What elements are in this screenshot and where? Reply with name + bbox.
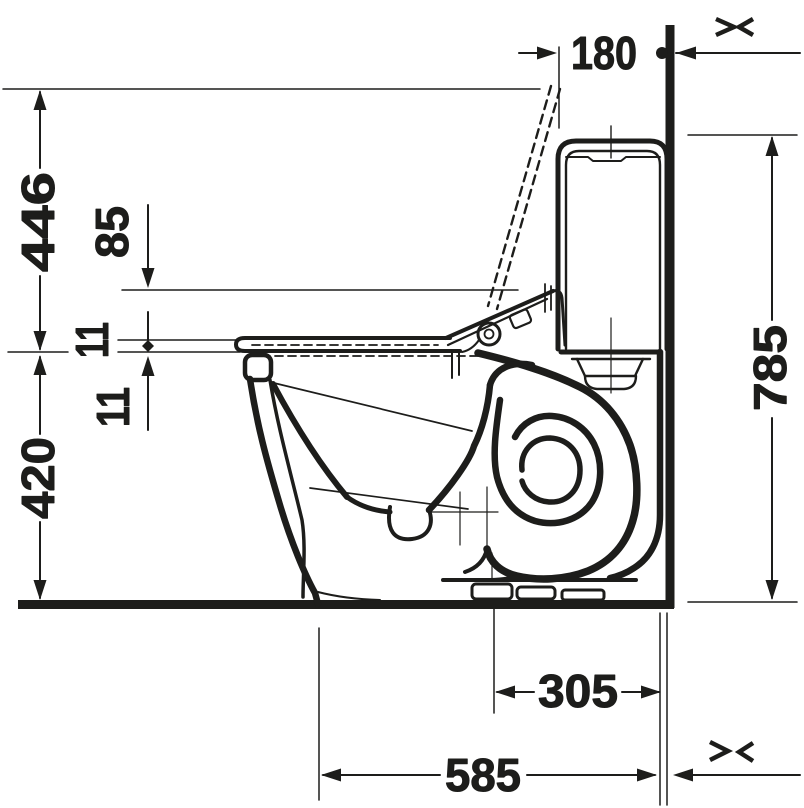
arrowhead-right-icon <box>641 686 661 699</box>
trapway-curves <box>429 364 636 580</box>
arrowhead-up-icon <box>34 355 47 375</box>
dimension-label-585: 585 <box>445 749 521 801</box>
arrowhead-left-icon <box>676 47 696 60</box>
dimension-420: 420 <box>8 352 68 600</box>
dimension-85: 85 <box>86 205 518 290</box>
arrowhead-left-icon <box>495 686 515 699</box>
sump-section <box>389 507 431 539</box>
floor-line <box>18 602 797 605</box>
dimension-label-180: 180 <box>571 27 637 79</box>
dimension-dot-icon <box>656 47 668 59</box>
dimension-label-446: 446 <box>12 172 64 272</box>
arrowhead-down-icon <box>34 580 47 600</box>
dimension-label-305: 305 <box>538 665 618 717</box>
dimension-label-785: 785 <box>744 325 796 411</box>
arrowhead-up-icon <box>34 90 47 110</box>
cistern-outline <box>558 141 667 349</box>
arrowhead-left-icon <box>321 769 341 782</box>
dimension-785: 785 <box>688 135 797 600</box>
arrowhead-down-icon <box>766 580 779 600</box>
arrowhead-left-icon <box>673 769 693 782</box>
dimension-11-upper: 11 <box>66 312 240 358</box>
arrowhead-right-icon <box>537 47 557 60</box>
dimension-11-lower: 11 <box>87 356 155 430</box>
dimension-label-420: 420 <box>12 437 64 519</box>
open-lid-dashed-outline <box>488 86 560 309</box>
arrowhead-down-icon <box>34 331 47 351</box>
arrowhead-down-icon <box>142 268 155 288</box>
drawing-canvas: 180 446 85 11 11 420 <box>0 0 804 808</box>
dimension-label-85: 85 <box>86 206 138 258</box>
dimension-180: 180 <box>519 27 800 128</box>
dimension-label-11-lower: 11 <box>87 387 139 427</box>
double-arrow-icon <box>142 340 154 352</box>
unit-button <box>509 309 532 329</box>
technical-drawing: 180 446 85 11 11 420 <box>0 0 804 808</box>
arrowhead-up-icon <box>766 136 779 156</box>
dimension-label-11-upper: 11 <box>66 322 118 358</box>
dimension-break-icon-bottom <box>710 742 753 761</box>
arrowhead-right-icon <box>637 769 657 782</box>
base-feet <box>472 584 604 600</box>
dimension-446: 446 <box>3 89 540 351</box>
dimension-break-icon-top <box>716 19 753 35</box>
